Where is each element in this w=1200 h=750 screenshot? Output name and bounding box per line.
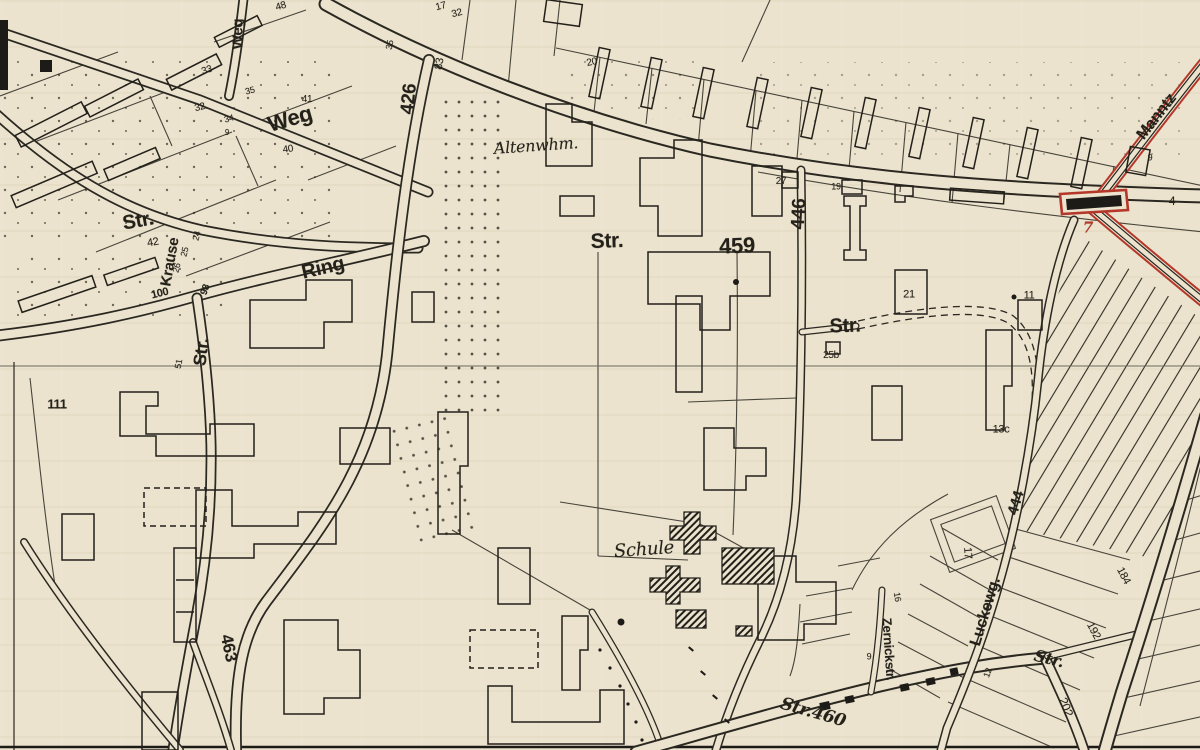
building-hatched: [650, 566, 700, 604]
building: [895, 270, 927, 314]
building-hatched: [722, 548, 774, 584]
building: [488, 686, 624, 744]
building: [470, 630, 538, 668]
road-zernickstr: [871, 590, 882, 692]
building: [560, 196, 594, 216]
building: [986, 330, 1012, 430]
road-460: [636, 658, 1046, 750]
map-linework: [0, 0, 1200, 750]
building: [844, 196, 866, 260]
building-hatched: [676, 610, 706, 628]
building: [250, 280, 352, 348]
building: [782, 172, 798, 188]
building: [284, 620, 360, 714]
red-road-bar: [1060, 190, 1128, 214]
building: [1018, 300, 1042, 330]
building: [640, 140, 702, 236]
building: [544, 0, 583, 26]
map-canvas: WegWegStr.KrauseRingStr.426463446459Str.…: [0, 0, 1200, 750]
building-hatched: [670, 512, 716, 554]
road-str-short-center: [802, 326, 856, 332]
building: [498, 548, 530, 604]
building: [826, 342, 840, 354]
building: [895, 186, 913, 202]
building: [562, 616, 588, 690]
building-hatched: [736, 626, 752, 636]
building: [120, 392, 254, 456]
building: [62, 514, 94, 560]
building: [648, 252, 770, 330]
building: [676, 296, 702, 392]
school-buildings: [650, 512, 774, 636]
road-446: [716, 170, 802, 750]
road-bottomleft-curve: [24, 542, 180, 750]
building: [196, 490, 336, 558]
building: [412, 292, 434, 322]
road-schule-west: [592, 612, 662, 750]
building: [872, 386, 902, 440]
